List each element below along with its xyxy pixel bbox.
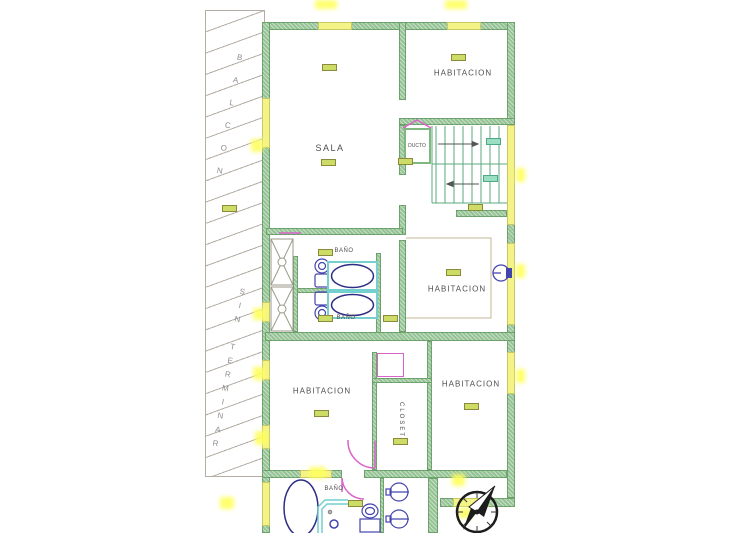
window-glow	[253, 308, 265, 320]
wall	[266, 228, 403, 235]
window-glow	[516, 264, 525, 278]
room-label-habitacion-bottom-left: HABITACION	[293, 387, 351, 396]
window-glow	[458, 508, 472, 518]
dimension-tag	[314, 410, 329, 417]
dimension-tag	[222, 205, 237, 212]
wall	[372, 378, 432, 383]
wall	[427, 341, 432, 470]
stairs-direction-arrows	[438, 142, 479, 187]
window-glow	[220, 497, 234, 509]
wall	[428, 478, 438, 533]
window-glow	[253, 367, 265, 380]
dimension-tag	[446, 269, 461, 276]
room-label-habitacion-middle: HABITACION	[428, 285, 486, 294]
dimension-tag	[398, 158, 413, 165]
window-glow	[255, 431, 267, 445]
room-label-bano-lower: BAÑO	[336, 315, 355, 321]
closet-duct-box	[377, 353, 404, 377]
room-label-ducto: DUCTO	[408, 143, 426, 149]
floor-plan: BALCON SIN TERMINAR	[0, 0, 750, 533]
shower-stall	[271, 239, 293, 331]
window-glow	[445, 0, 467, 9]
wall	[364, 470, 507, 478]
window	[453, 498, 489, 507]
toilet	[360, 504, 380, 532]
room-label-bano-ground: BAÑO	[324, 486, 343, 492]
dimension-tag	[468, 204, 483, 211]
window-glow	[516, 168, 525, 182]
room-label-sala: SALA	[315, 143, 344, 153]
alcove-outline	[406, 238, 491, 318]
wall	[297, 288, 380, 293]
wall	[380, 478, 384, 533]
wall	[399, 240, 406, 332]
window	[507, 243, 515, 325]
window-glow	[251, 139, 263, 152]
dimension-tag	[483, 175, 498, 182]
wall	[293, 256, 298, 332]
room-label-bano-upper: BAÑO	[334, 248, 353, 254]
dimension-tag	[486, 138, 501, 145]
window	[318, 22, 352, 30]
window	[507, 125, 515, 225]
dimension-tag	[464, 403, 479, 410]
window-glow	[452, 474, 465, 486]
dimension-tag	[348, 500, 363, 507]
dimension-tag	[383, 315, 398, 322]
corner-shower	[318, 500, 348, 533]
wall	[399, 22, 406, 100]
window-glow	[516, 369, 525, 383]
sink	[386, 483, 409, 528]
wall	[456, 210, 507, 217]
window	[262, 482, 270, 526]
dimension-tag	[451, 54, 466, 61]
window-glow	[309, 467, 326, 478]
window-glow	[315, 0, 337, 9]
oval-bathtub	[284, 480, 318, 533]
wall	[265, 332, 515, 341]
room-label-habitacion-bottom-right: HABITACION	[442, 380, 500, 389]
dimension-tag	[318, 315, 333, 322]
wall	[376, 253, 381, 333]
room-label-closet: CLOSET	[398, 402, 404, 438]
window	[262, 98, 270, 148]
dimension-tag	[322, 64, 337, 71]
dimension-tag	[318, 249, 333, 256]
window	[507, 352, 515, 394]
room-label-habitacion-top: HABITACION	[434, 69, 492, 78]
dimension-tag	[321, 159, 336, 166]
wall	[399, 118, 515, 125]
dimension-tag	[393, 438, 408, 445]
window	[447, 22, 481, 30]
